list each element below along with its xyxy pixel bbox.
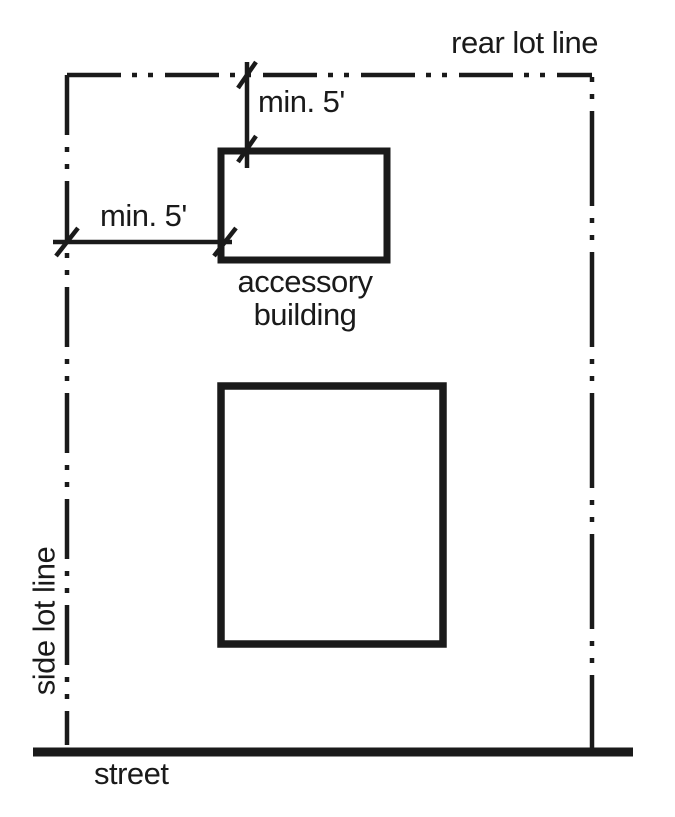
side-lot-line-label: side lot line: [29, 547, 62, 696]
rear-lot-line-label: rear lot line: [420, 27, 598, 60]
accessory-building-label-line1: accessory: [204, 266, 406, 299]
site-plan-diagram: rear lot line min. 5' min. 5' accessory …: [0, 0, 675, 817]
site-plan-drawing: [0, 0, 675, 817]
accessory-building-label: accessory building: [204, 266, 406, 331]
side-setback-value-label: min. 5': [100, 200, 187, 233]
principal-building-rect: [221, 386, 443, 644]
rear-setback-value-label: min. 5': [258, 86, 345, 119]
street-label: street: [94, 758, 169, 791]
accessory-building-label-line2: building: [204, 299, 406, 332]
